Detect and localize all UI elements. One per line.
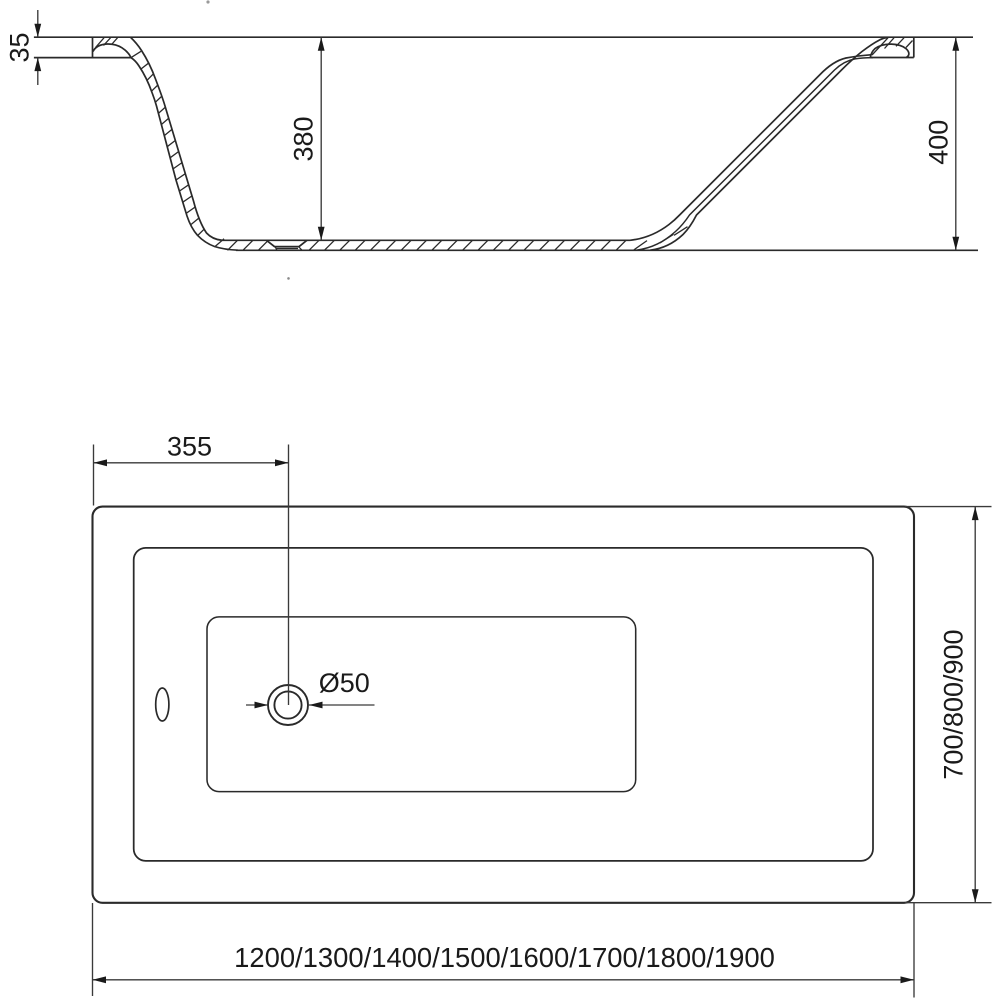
svg-text:700/800/900: 700/800/900 xyxy=(939,629,969,779)
svg-text:400: 400 xyxy=(923,120,953,165)
svg-text:35: 35 xyxy=(5,32,35,62)
svg-text:Ø50: Ø50 xyxy=(319,668,370,698)
svg-text:355: 355 xyxy=(167,431,212,461)
svg-text:1200/1300/1400/1500/1600/1700/: 1200/1300/1400/1500/1600/1700/1800/1900 xyxy=(234,942,775,973)
svg-text:380: 380 xyxy=(289,116,319,161)
